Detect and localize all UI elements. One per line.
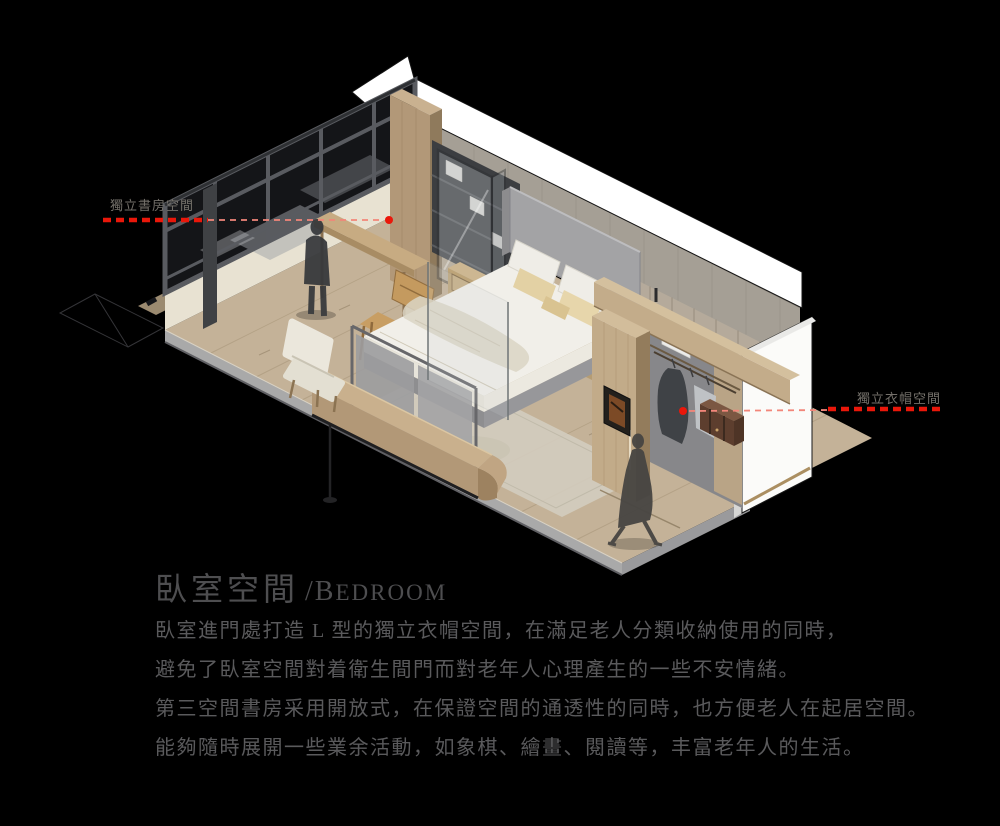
body-line: 臥室進門處打造 L 型的獨立衣帽空間，在滿足老人分類收納使用的同時，	[155, 612, 929, 651]
title-en-rest: EDROOM	[335, 580, 447, 605]
body-line: 避免了臥室空間對着衛生間門而對老年人心理產生的一些不安情緒。	[155, 651, 929, 690]
title-zh: 臥室空間	[155, 571, 299, 607]
description-paragraph: 臥室進門處打造 L 型的獨立衣帽空間，在滿足老人分類收納使用的同時， 避免了臥室…	[155, 612, 929, 768]
leader-dot-icon	[679, 407, 687, 415]
body-line: 第三空間書房采用開放式，在保證空間的通透性的同時，也方便老人在起居空間。	[155, 690, 929, 729]
study-space-label: 獨立書房空間	[110, 195, 194, 214]
leader-dot-icon	[385, 216, 393, 224]
body-line: 能夠隨時展開一些業余活動，如象棋、繪畫、閱讀等，丰富老年人的生活。	[155, 729, 929, 768]
title-en-initial: /B	[305, 576, 335, 607]
cloak-space-label: 獨立衣帽空間	[857, 388, 941, 407]
presentation-board: 獨立書房空間 獨立衣帽空間 臥室空間/BEDROOM 臥室進門處打造 L 型的獨…	[0, 0, 1000, 826]
section-title: 臥室空間/BEDROOM	[155, 564, 447, 610]
window-wall-end-post	[203, 183, 217, 329]
hanging-coat	[658, 368, 689, 444]
